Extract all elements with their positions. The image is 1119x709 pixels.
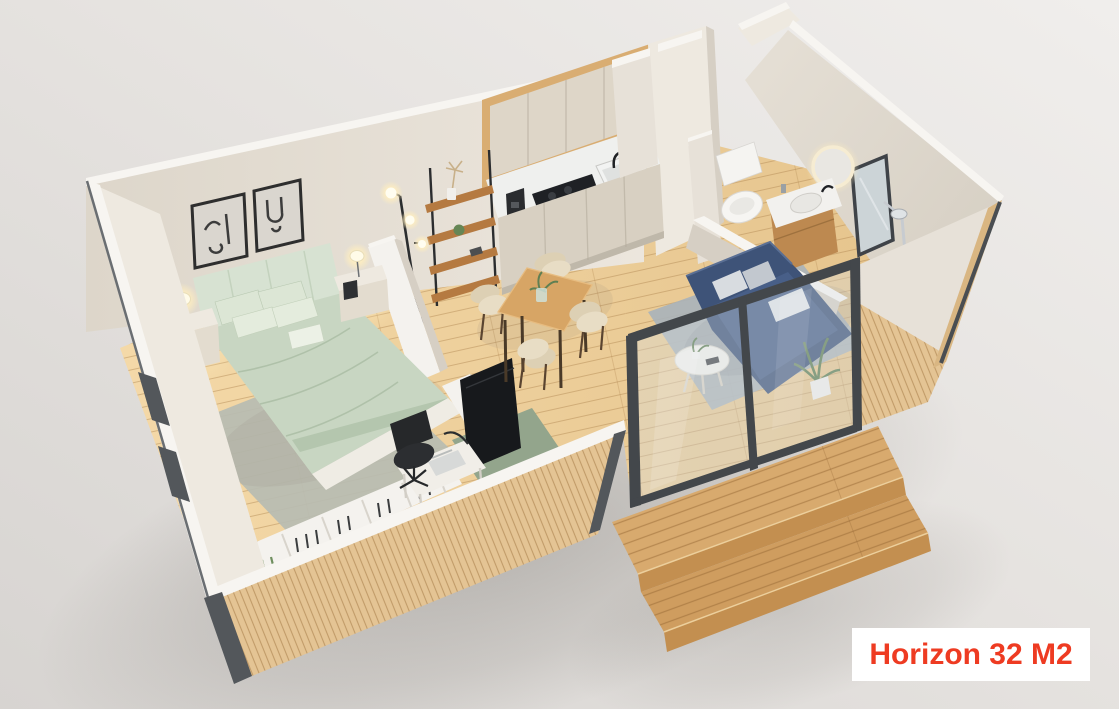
lamp-globe bbox=[386, 188, 397, 199]
coffee-machine-panel bbox=[511, 202, 519, 208]
photo-frame bbox=[343, 280, 358, 300]
floorplan-render: Horizon 32 M2 bbox=[0, 0, 1119, 709]
art-frame-right bbox=[254, 180, 303, 251]
burner bbox=[564, 186, 572, 194]
soap-bottle bbox=[781, 184, 786, 193]
burner bbox=[548, 192, 556, 200]
wall-art-right bbox=[254, 180, 303, 251]
table-lamp-shade bbox=[350, 251, 364, 262]
plan-name-label: Horizon 32 M2 bbox=[852, 628, 1090, 681]
shelf-vase bbox=[447, 188, 456, 200]
wall-art-left bbox=[192, 194, 247, 268]
art-frame-left bbox=[192, 194, 247, 268]
shelf-plant bbox=[454, 225, 465, 236]
plan-name-text: Horizon 32 M2 bbox=[869, 638, 1072, 672]
table-plant-vase bbox=[536, 288, 547, 302]
closet-wall-1 bbox=[612, 52, 658, 178]
scene-canvas bbox=[0, 0, 1119, 709]
lamp-globe bbox=[418, 240, 426, 248]
lamp-globe bbox=[405, 215, 414, 224]
shower-head bbox=[891, 209, 907, 219]
